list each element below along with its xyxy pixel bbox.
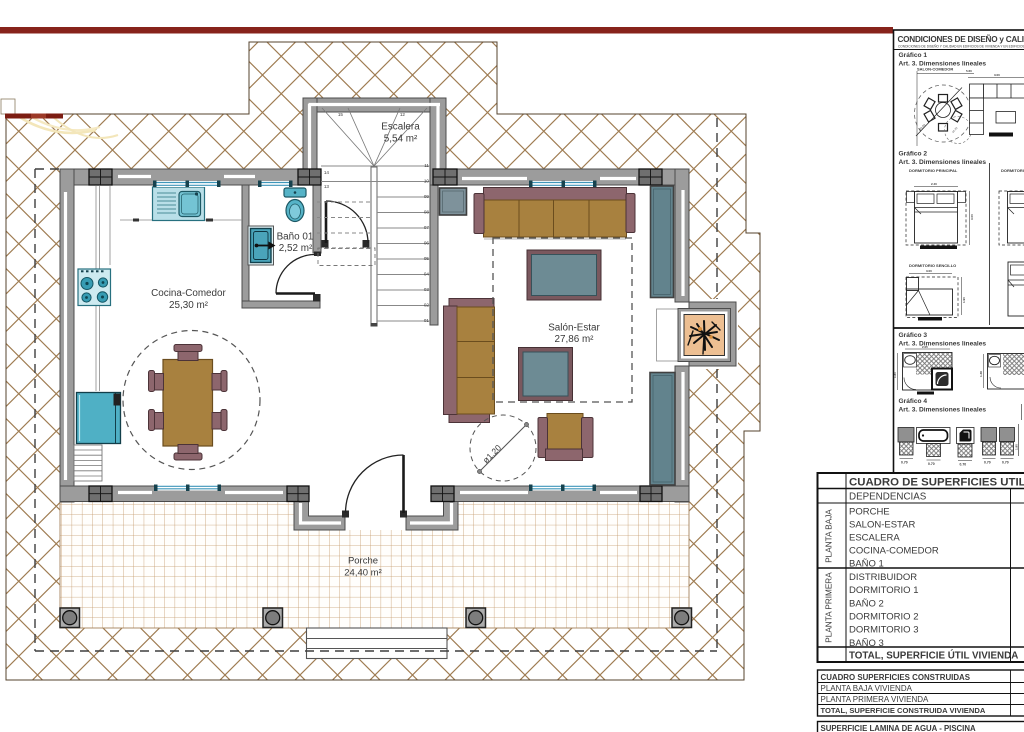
svg-text:0.70: 0.70 bbox=[928, 462, 935, 466]
svg-text:BAÑO 1: BAÑO 1 bbox=[849, 559, 884, 570]
svg-text:5,54 m²: 5,54 m² bbox=[384, 134, 418, 145]
svg-text:0.70: 0.70 bbox=[960, 463, 967, 467]
svg-text:TOTAL, SUPERFICIE ÚTIL VIVIEND: TOTAL, SUPERFICIE ÚTIL VIVIENDA bbox=[849, 650, 1018, 662]
svg-text:13: 13 bbox=[324, 184, 330, 189]
svg-text:3.00: 3.00 bbox=[926, 269, 932, 273]
svg-text:Art. 3. Dimensiones lineales: Art. 3. Dimensiones lineales bbox=[899, 159, 987, 166]
svg-text:SUPERFICIE LAMINA DE AGUA - PI: SUPERFICIE LAMINA DE AGUA - PISCINA bbox=[821, 724, 976, 732]
svg-text:TOTAL, SUPERFICIE CONSTRUIDA V: TOTAL, SUPERFICIE CONSTRUIDA VIVIENDA bbox=[821, 706, 986, 715]
svg-text:Art. 3. Dimensiones lineales: Art. 3. Dimensiones lineales bbox=[899, 407, 987, 414]
svg-text:ESCALERA: ESCALERA bbox=[849, 533, 900, 544]
svg-text:27,86 m²: 27,86 m² bbox=[555, 334, 595, 345]
svg-text:07: 07 bbox=[424, 225, 430, 230]
svg-text:PORCHE: PORCHE bbox=[849, 507, 890, 518]
svg-text:CONDICIONES DE DISEÑO Y CALIDA: CONDICIONES DE DISEÑO Y CALIDAD EN EDIFI… bbox=[898, 44, 1024, 49]
svg-text:Art. 3. Dimensiones lineales: Art. 3. Dimensiones lineales bbox=[899, 341, 987, 348]
svg-text:Gráfico 4: Gráfico 4 bbox=[899, 398, 928, 405]
svg-text:09: 09 bbox=[424, 194, 430, 199]
svg-text:1.90: 1.90 bbox=[962, 297, 966, 303]
svg-text:0.70: 0.70 bbox=[984, 461, 991, 465]
svg-text:Gráfico 1: Gráfico 1 bbox=[899, 52, 928, 59]
svg-text:02: 02 bbox=[424, 303, 430, 308]
svg-text:Escalera: Escalera bbox=[381, 122, 420, 133]
svg-text:COCINA-COMEDOR: COCINA-COMEDOR bbox=[849, 546, 939, 557]
svg-text:1.38: 1.38 bbox=[979, 371, 983, 377]
svg-text:10: 10 bbox=[424, 179, 430, 184]
svg-text:2,52 m²: 2,52 m² bbox=[279, 243, 313, 254]
svg-text:CUADRO DE SUPERFICIES UTILES: CUADRO DE SUPERFICIES UTILES bbox=[849, 477, 1024, 489]
svg-text:SALON-ESTAR: SALON-ESTAR bbox=[849, 520, 915, 531]
svg-text:2.40: 2.40 bbox=[931, 182, 937, 186]
svg-text:24,40 m²: 24,40 m² bbox=[344, 568, 382, 579]
svg-text:CUADRO SUPERFICIES CONSTRUIDAS: CUADRO SUPERFICIES CONSTRUIDAS bbox=[821, 673, 971, 682]
svg-text:14: 14 bbox=[324, 170, 330, 175]
svg-text:01: 01 bbox=[424, 318, 430, 323]
svg-text:0.70: 0.70 bbox=[1002, 461, 1009, 465]
svg-text:Salón-Estar: Salón-Estar bbox=[548, 323, 600, 334]
svg-text:08: 08 bbox=[424, 210, 430, 215]
svg-text:25,30 m²: 25,30 m² bbox=[169, 300, 209, 311]
svg-text:Porche: Porche bbox=[348, 556, 378, 567]
svg-text:DORMITORIO 1: DORMITORIO 1 bbox=[849, 585, 919, 596]
svg-text:3.00: 3.00 bbox=[970, 214, 974, 220]
svg-text:1.80: 1.80 bbox=[1015, 444, 1019, 450]
svg-text:03: 03 bbox=[424, 287, 430, 292]
svg-text:15: 15 bbox=[338, 112, 344, 117]
svg-text:DEPENDENCIAS: DEPENDENCIAS bbox=[849, 492, 927, 503]
svg-text:DORMITORIO: DORMITORIO bbox=[1001, 168, 1024, 173]
svg-text:Cocina-Comedor: Cocina-Comedor bbox=[151, 288, 226, 299]
svg-text:PLANTA BAJA VIVIENDA: PLANTA BAJA VIVIENDA bbox=[821, 684, 913, 693]
svg-text:05: 05 bbox=[424, 256, 430, 261]
svg-text:BAÑO 3: BAÑO 3 bbox=[849, 638, 884, 649]
svg-text:11: 11 bbox=[424, 163, 429, 168]
svg-text:1.80: 1.80 bbox=[893, 372, 897, 378]
svg-text:DORMITORIO SENCILLO: DORMITORIO SENCILLO bbox=[909, 263, 956, 268]
svg-text:BAÑO 2: BAÑO 2 bbox=[849, 598, 884, 609]
svg-text:Baño 01: Baño 01 bbox=[277, 232, 314, 243]
svg-text:Gráfico 3: Gráfico 3 bbox=[899, 332, 928, 339]
svg-text:DORMITORIO PRINCIPAL: DORMITORIO PRINCIPAL bbox=[909, 168, 958, 173]
svg-text:PLANTA PRIMERA VIVIENDA: PLANTA PRIMERA VIVIENDA bbox=[821, 695, 930, 704]
svg-text:5.60: 5.60 bbox=[966, 69, 972, 73]
svg-text:SALON-COMEDOR: SALON-COMEDOR bbox=[917, 67, 953, 72]
svg-text:PLANTA BAJA: PLANTA BAJA bbox=[825, 509, 834, 563]
svg-text:DORMITORIO 2: DORMITORIO 2 bbox=[849, 612, 919, 623]
svg-text:Gráfico 2: Gráfico 2 bbox=[899, 151, 928, 158]
svg-text:CONDICIONES DE DISEÑO y CALIDA: CONDICIONES DE DISEÑO y CALIDAD EN EDIFI… bbox=[898, 34, 1024, 44]
svg-text:DISTRIBUIDOR: DISTRIBUIDOR bbox=[849, 572, 917, 583]
svg-text:12: 12 bbox=[400, 112, 406, 117]
svg-text:06: 06 bbox=[424, 241, 430, 246]
svg-text:DORMITORIO 3: DORMITORIO 3 bbox=[849, 625, 919, 636]
svg-text:3.00: 3.00 bbox=[994, 73, 1000, 77]
svg-text:2.05: 2.05 bbox=[922, 345, 928, 349]
svg-text:04: 04 bbox=[424, 272, 430, 277]
svg-text:PLANTA PRIMERA: PLANTA PRIMERA bbox=[825, 572, 834, 643]
svg-text:0.70: 0.70 bbox=[901, 461, 908, 465]
